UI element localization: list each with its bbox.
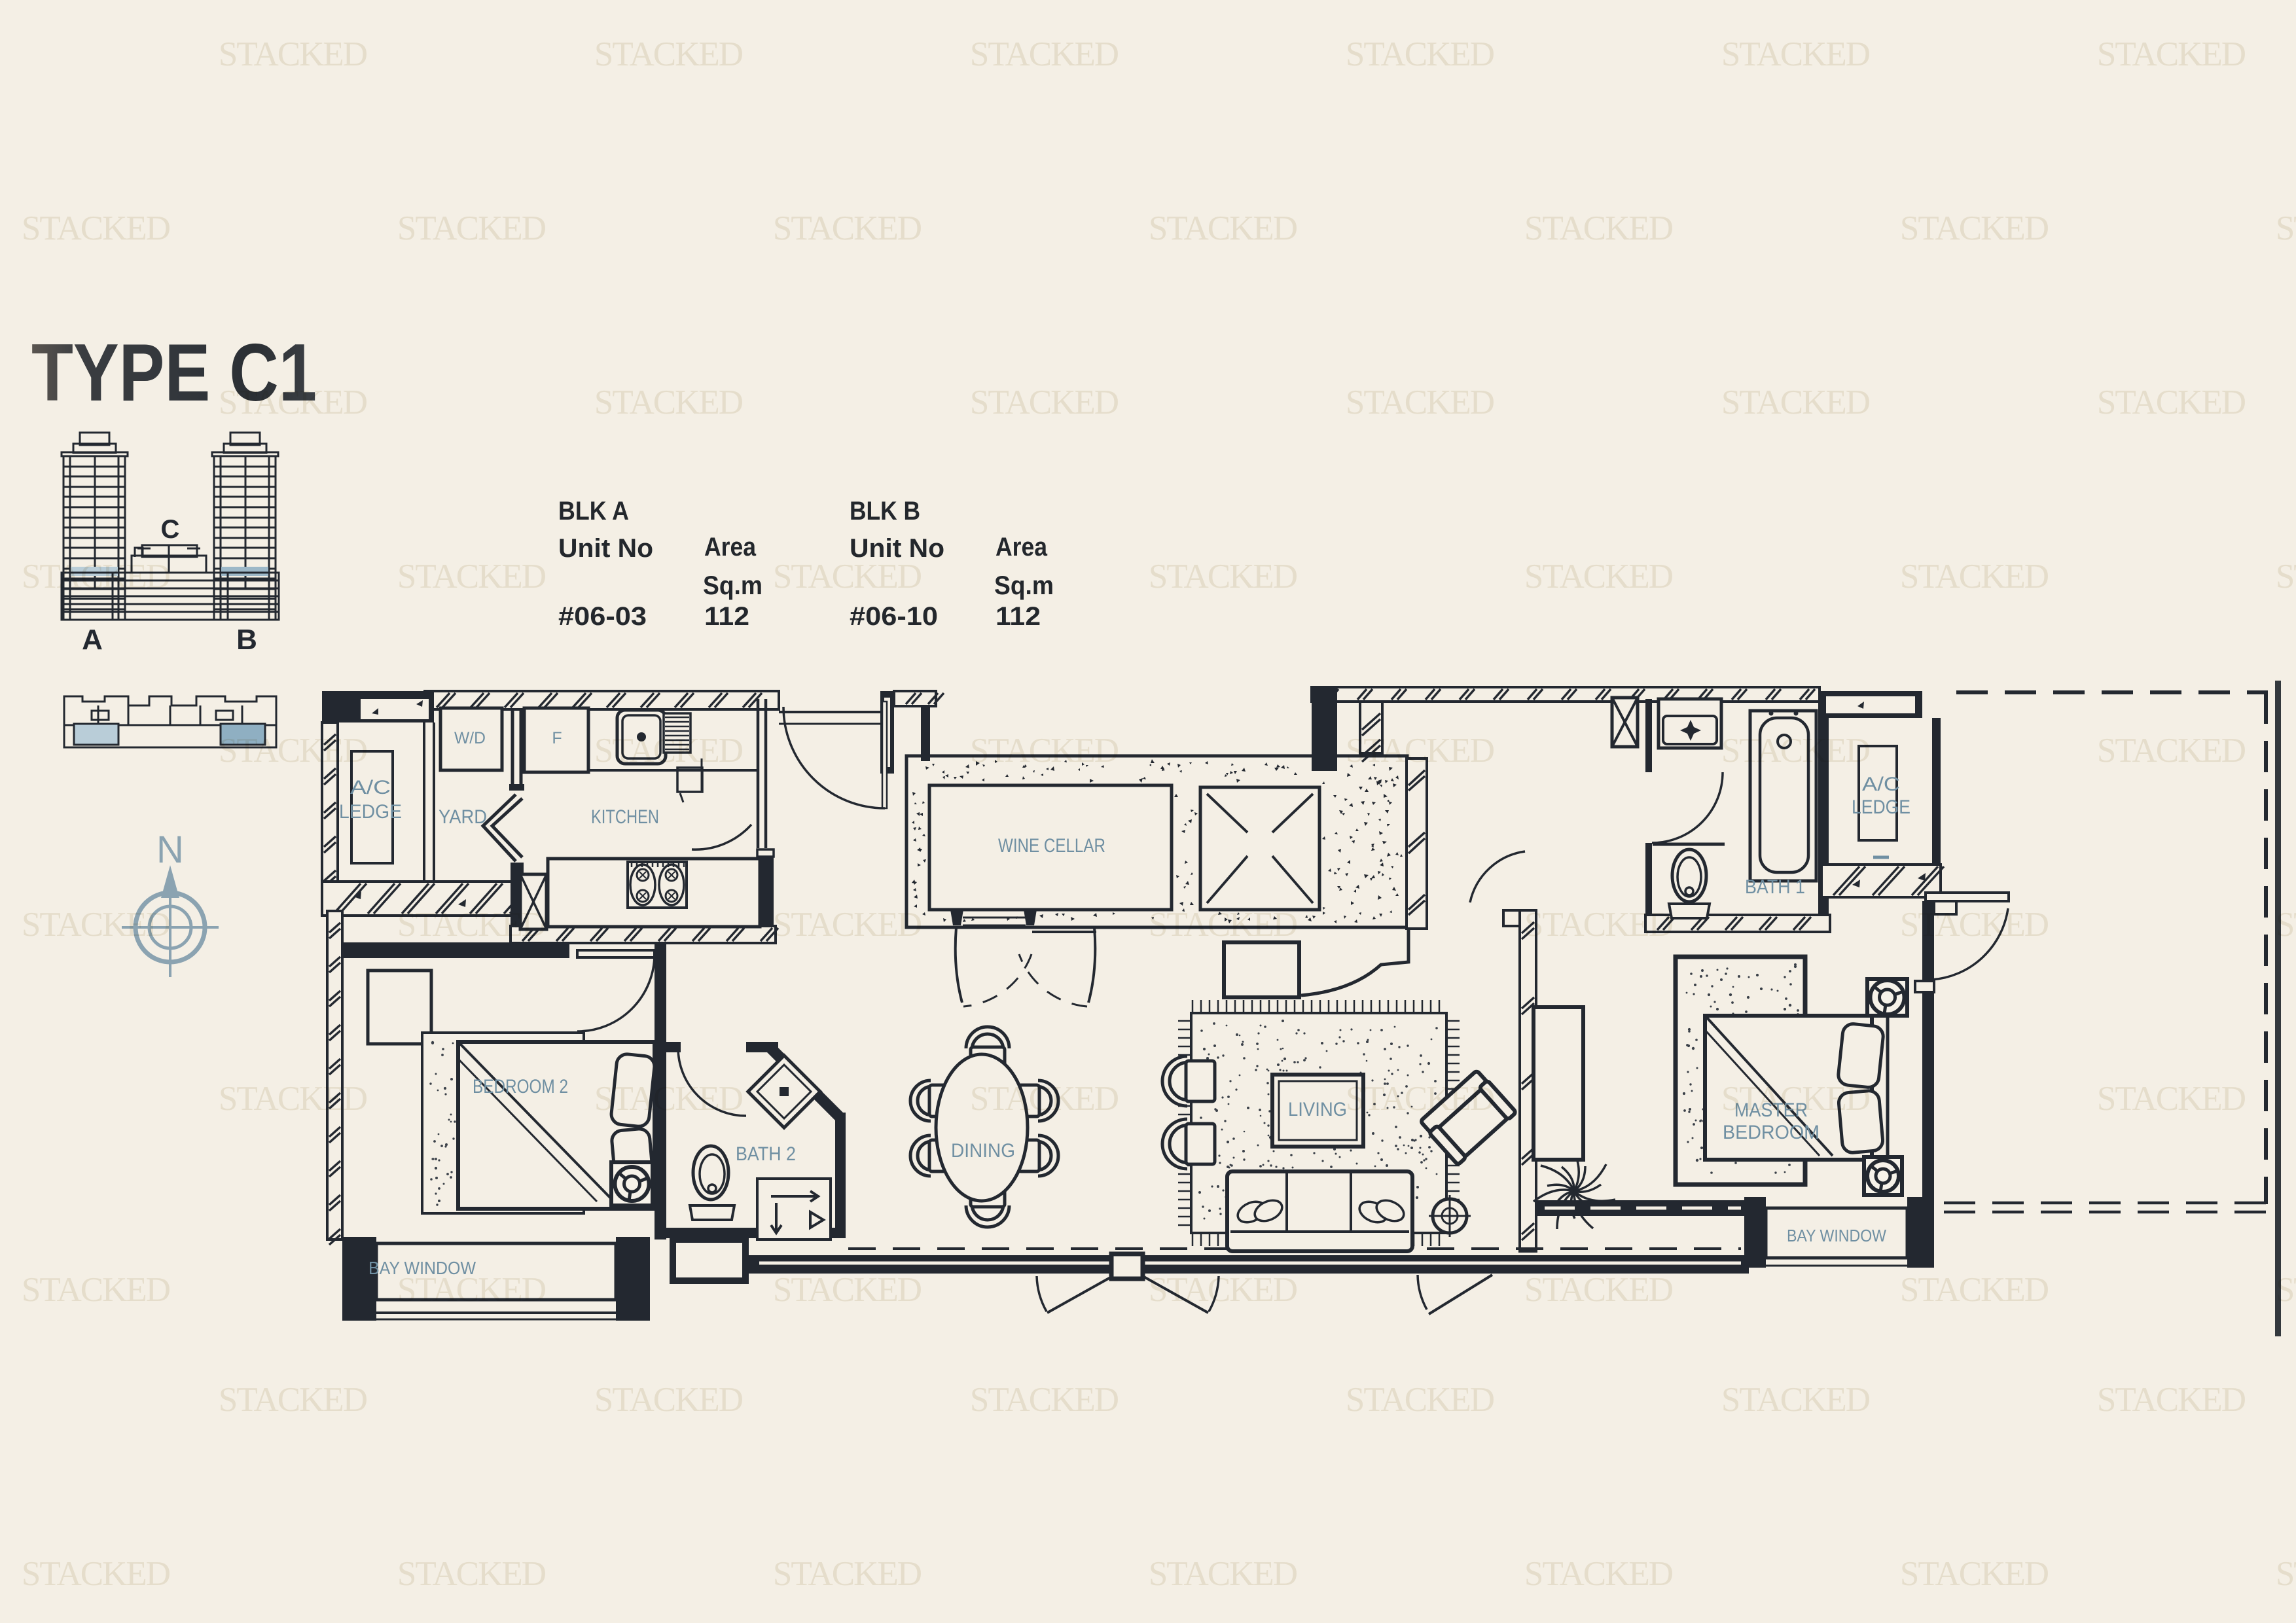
svg-text:STACKED: STACKED	[2276, 209, 2296, 247]
svg-text:STACKED: STACKED	[219, 1381, 367, 1419]
svg-text:Unit No: Unit No	[558, 534, 653, 563]
svg-text:STACKED: STACKED	[22, 1271, 170, 1309]
svg-text:112: 112	[704, 602, 749, 631]
svg-text:DINING: DINING	[951, 1140, 1015, 1162]
svg-text:STACKED: STACKED	[1346, 1080, 1494, 1118]
svg-text:Sq.m: Sq.m	[994, 571, 1054, 600]
svg-text:WINE CELLAR: WINE CELLAR	[998, 835, 1105, 857]
svg-text:Area: Area	[996, 533, 1048, 562]
svg-text:STACKED: STACKED	[2097, 732, 2246, 770]
svg-text:Sq.m: Sq.m	[703, 571, 762, 600]
svg-text:STACKED: STACKED	[970, 1080, 1119, 1118]
svg-text:STACKED: STACKED	[397, 1555, 546, 1593]
svg-text:STACKED: STACKED	[1346, 35, 1494, 73]
svg-text:STACKED: STACKED	[1900, 1271, 2049, 1309]
svg-text:W/D: W/D	[454, 729, 486, 747]
svg-text:STACKED: STACKED	[397, 209, 546, 247]
svg-text:STACKED: STACKED	[1900, 558, 2049, 596]
svg-text:STACKED: STACKED	[2097, 1381, 2246, 1419]
svg-text:KITCHEN: KITCHEN	[591, 806, 659, 828]
svg-text:STACKED: STACKED	[1524, 1271, 1673, 1309]
svg-text:STACKED: STACKED	[1149, 209, 1297, 247]
svg-text:C: C	[161, 515, 180, 544]
svg-text:STACKED: STACKED	[773, 558, 922, 596]
svg-text:STACKED: STACKED	[22, 906, 170, 944]
svg-text:STACKED: STACKED	[773, 209, 922, 247]
svg-text:STACKED: STACKED	[1900, 906, 2049, 944]
svg-text:STACKED: STACKED	[1524, 906, 1673, 944]
svg-text:STACKED: STACKED	[594, 1381, 743, 1419]
svg-text:BEDROOM 2: BEDROOM 2	[473, 1076, 568, 1097]
svg-text:#06-03: #06-03	[558, 602, 647, 631]
svg-text:LEDGE: LEDGE	[1852, 796, 1910, 818]
svg-text:STACKED: STACKED	[2276, 1555, 2296, 1593]
svg-text:N: N	[156, 829, 184, 871]
svg-text:STACKED: STACKED	[1721, 35, 1870, 73]
svg-text:BAY WINDOW: BAY WINDOW	[1787, 1226, 1886, 1245]
svg-text:STACKED: STACKED	[594, 383, 743, 421]
svg-text:STACKED: STACKED	[1721, 1381, 1870, 1419]
svg-text:STACKED: STACKED	[1346, 732, 1494, 770]
svg-text:STACKED: STACKED	[970, 35, 1119, 73]
svg-text:STACKED: STACKED	[970, 1381, 1119, 1419]
svg-text:Area: Area	[704, 533, 757, 562]
svg-text:STACKED: STACKED	[1900, 1555, 2049, 1593]
svg-text:BATH 2: BATH 2	[736, 1143, 796, 1165]
svg-text:STACKED: STACKED	[22, 1555, 170, 1593]
svg-text:STACKED: STACKED	[1149, 1271, 1297, 1309]
svg-text:STACKED: STACKED	[1149, 906, 1297, 944]
svg-text:STACKED: STACKED	[1721, 732, 1870, 770]
svg-text:LIVING: LIVING	[1288, 1099, 1347, 1120]
svg-text:STACKED: STACKED	[219, 732, 367, 770]
svg-text:STACKED: STACKED	[397, 1271, 546, 1309]
svg-text:STACKED: STACKED	[773, 1271, 922, 1309]
svg-text:STACKED: STACKED	[397, 558, 546, 596]
svg-text:STACKED: STACKED	[594, 35, 743, 73]
svg-text:BLK B: BLK B	[850, 497, 920, 526]
svg-text:YARD: YARD	[439, 806, 487, 828]
svg-text:STACKED: STACKED	[22, 558, 170, 596]
svg-text:B: B	[236, 624, 257, 656]
svg-text:STACKED: STACKED	[1524, 209, 1673, 247]
svg-text:STACKED: STACKED	[2097, 35, 2246, 73]
svg-text:STACKED: STACKED	[1721, 383, 1870, 421]
svg-text:F: F	[552, 729, 562, 747]
svg-text:STACKED: STACKED	[1149, 1555, 1297, 1593]
svg-text:STACKED: STACKED	[594, 732, 743, 770]
svg-text:LEDGE: LEDGE	[339, 801, 402, 823]
svg-text:STACKED: STACKED	[22, 209, 170, 247]
svg-text:STACKED: STACKED	[219, 35, 367, 73]
svg-text:STACKED: STACKED	[219, 1080, 367, 1118]
svg-text:STACKED: STACKED	[219, 383, 367, 421]
svg-text:STACKED: STACKED	[1721, 1080, 1870, 1118]
svg-text:STACKED: STACKED	[1346, 1381, 1494, 1419]
svg-text:BEDROOM: BEDROOM	[1723, 1122, 1820, 1143]
svg-text:STACKED: STACKED	[1524, 558, 1673, 596]
svg-text:STACKED: STACKED	[773, 1555, 922, 1593]
svg-text:BLK A: BLK A	[558, 497, 629, 526]
svg-text:STACKED: STACKED	[970, 383, 1119, 421]
svg-text:STACKED: STACKED	[773, 906, 922, 944]
svg-text:STACKED: STACKED	[1149, 558, 1297, 596]
svg-text:STACKED: STACKED	[1524, 1555, 1673, 1593]
svg-text:STACKED: STACKED	[397, 906, 546, 944]
svg-text:STACKED: STACKED	[2097, 383, 2246, 421]
svg-text:BATH 1: BATH 1	[1745, 876, 1805, 898]
svg-text:STACKED: STACKED	[594, 1080, 743, 1118]
svg-text:STACKED: STACKED	[1346, 383, 1494, 421]
svg-text:A/C: A/C	[350, 777, 391, 798]
svg-text:STACKED: STACKED	[2276, 906, 2296, 944]
svg-text:STACKED: STACKED	[1900, 209, 2049, 247]
svg-text:112: 112	[996, 602, 1041, 631]
svg-text:A/C: A/C	[1862, 774, 1900, 795]
svg-text:A: A	[82, 624, 103, 656]
svg-text:STACKED: STACKED	[2097, 1080, 2246, 1118]
svg-text:STACKED: STACKED	[2276, 1271, 2296, 1309]
svg-text:STACKED: STACKED	[970, 732, 1119, 770]
svg-text:STACKED: STACKED	[2276, 558, 2296, 596]
svg-text:#06-10: #06-10	[850, 602, 938, 631]
